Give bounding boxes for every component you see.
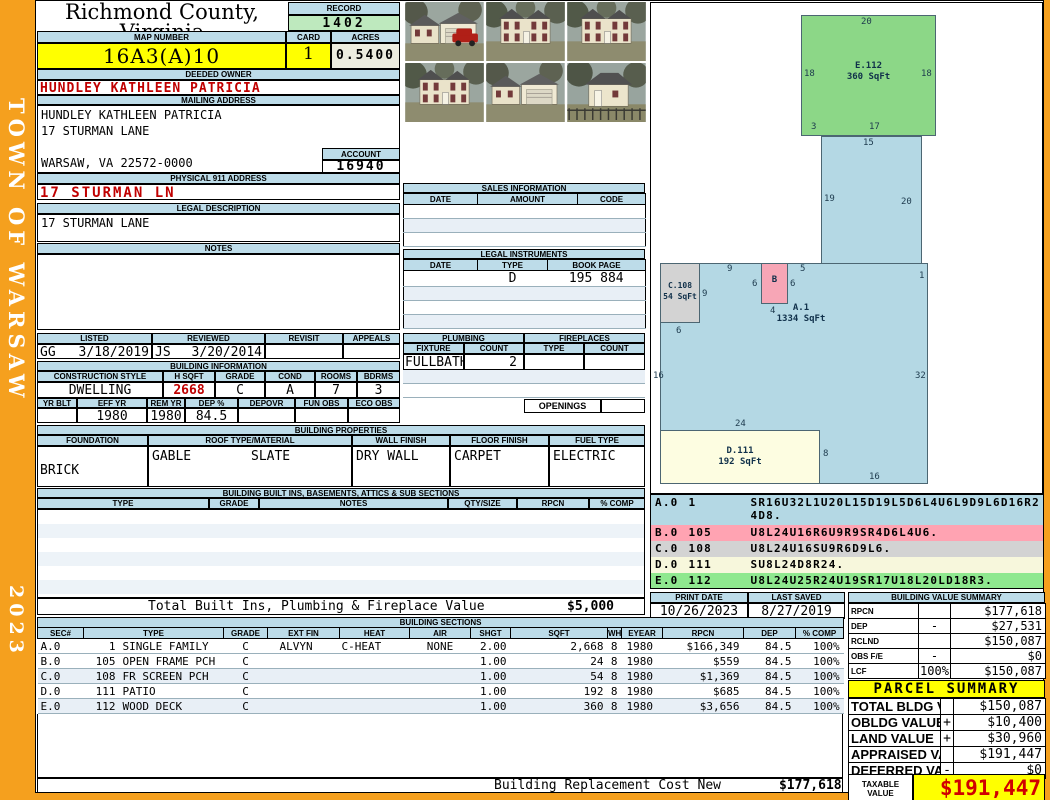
table-row: TOTAL BLDG VALUE$150,087 [849,699,1046,715]
listed-label: LISTED [37,333,152,344]
fireplace-type-label: TYPE [524,343,584,354]
cell-label: RCLND [849,634,919,649]
table-row: OBLDG VALUE+$10,400 [849,715,1046,731]
replacement-cost-value: $177,618 [779,778,842,793]
cell-sec: E.0 [38,699,84,714]
grade-value: C [215,382,265,398]
cell-sec: A.0 [38,639,84,654]
table-row: B.0105OPEN FRAME PCHC1.002481980$55984.5… [38,654,844,669]
built-ins-title: BUILDING BUILT INS, BASEMENTS, ATTICS & … [37,488,645,498]
area-name: A.1 [741,303,861,314]
property-photo-4 [405,63,484,122]
table-row: DEP-$27,531 [849,619,1046,634]
cell-amount [478,205,578,219]
cell-dep: 84.5 [744,639,796,654]
funobs-value [295,408,348,423]
record-label: RECORD [288,2,400,15]
cell-value: $150,087 [951,664,1046,679]
map-number-label: MAP NUMBER [37,31,286,43]
foundation-label: FOUNDATION [37,435,148,446]
cell-eyear: 1980 [622,639,663,654]
area-size: 192 SqFt [660,457,820,468]
cell-type: FR SCREEN PCH [116,669,224,684]
cell-date [404,233,478,247]
cell-amount [478,219,578,233]
wall-finish-label: WALL FINISH [352,435,450,446]
listed-value: GG3/18/2019 [37,344,152,359]
wall-finish-value: DRY WALL [352,446,450,487]
construction-style-label: CONSTRUCTION STYLE [37,371,163,382]
cell-type [478,287,548,301]
cell-air [410,669,471,684]
cell-code [578,205,646,219]
building-sections-title: BUILDING SECTIONS [38,618,844,628]
cell-sign [941,699,954,715]
sketch-label-a1: A.1 1334 SqFt [741,303,861,325]
cell-eyear: 1980 [622,684,663,699]
remyr-value: 1980 [147,408,185,423]
year-banner: 2023 [5,585,27,658]
bs-header: WHGT [608,628,622,639]
cell-label: TOTAL BLDG VALUE [849,699,941,715]
cell-comp: 100% [796,699,844,714]
dep-label: DEP % [185,398,238,408]
building-information-title: BUILDING INFORMATION [37,361,400,371]
cell-book [548,287,646,301]
cell-type [478,315,548,329]
cell-date [404,271,478,287]
acres-label: ACRES [331,31,400,43]
listed-date: 3/18/2019 [79,345,149,358]
dep-value: 84.5 [185,408,238,423]
bs-header: EXT FIN [268,628,340,639]
town-banner: TOWN OF WARSAW [4,98,29,403]
li-type-header: TYPE [478,260,548,271]
dimension-label: 16 [653,371,664,381]
cell-num: 1 [689,495,751,525]
cell-extfin [268,684,340,699]
dimension-label: 19 [824,194,835,204]
dimension-label: 6 [676,326,681,336]
revisit-value [265,344,343,359]
dimension-label: 24 [735,419,746,429]
empty-row [403,384,645,398]
legal-description-value: 17 STURMAN LANE [37,214,400,242]
dimension-label: 20 [901,197,912,207]
cell-extfin [268,699,340,714]
property-photo-5 [486,63,565,122]
mailing-line: 17 STURMAN LANE [41,124,399,140]
bi-rpcn-label: RPCN [517,498,589,509]
depovr-label: DEPOVR [238,398,295,408]
cell-sign [941,747,954,763]
cell-comp: 100% [796,654,844,669]
cell-comp: 100% [796,639,844,654]
area-size: 360 SqFt [801,72,936,83]
bi-comp-label: % COMP [589,498,645,509]
built-ins-total-label: Total Built Ins, Plumbing & Fireplace Va… [148,599,485,614]
bs-header: EYEAR [622,628,663,639]
ecoobs-label: ECO OBS [348,398,400,408]
dimension-label: 20 [861,17,872,27]
cell-code: SU8L24D8R24. [751,557,1044,573]
table-row: B.0105U8L24U16R6U9R9SR4D6L4U6. [651,525,1044,541]
sketch-label-e112: E.112 360 SqFt [801,61,936,83]
dimension-label: 9 [702,289,707,299]
bs-header: AIR [410,628,471,639]
mailing-address-label: MAILING ADDRESS [37,95,400,105]
card-label: CARD [286,31,331,43]
building-sections-table: BUILDING SECTIONS SEC# TYPE GRADE EXT FI… [37,617,844,714]
property-photo-2 [486,2,565,61]
cell-sqft: 2,668 [511,639,608,654]
sketch-label-b: B [761,275,788,286]
roof-value: GABLE SLATE [148,446,352,487]
county-title-block: Richmond County, Virginia Commissioner o… [37,2,287,31]
cell-dep: 84.5 [744,654,796,669]
legal-instruments-title: LEGAL INSTRUMENTS [403,249,645,259]
physical-address-value: 17 STURMAN LN [37,184,400,200]
cell-air: NONE [410,639,471,654]
cell-num: 1 [84,639,116,654]
cell-comp: 100% [796,684,844,699]
value-summary-table: RPCN$177,618DEP-$27,531RCLND$150,087OBS … [848,603,1046,679]
cell-sec: B.0 [38,654,84,669]
table-row: APPRAISED VALUE$191,447 [849,747,1046,763]
map-number-value: 16A3(A)10 [37,43,286,69]
table-row: D.0111PATIOC1.0019281980$68584.5100% [38,684,844,699]
area-name: E.112 [801,61,936,72]
bi-grade-label: GRADE [209,498,259,509]
cell-value: $10,400 [954,715,1046,731]
grade-label: GRADE [215,371,265,382]
deeded-owner-label: DEEDED OWNER [37,69,400,80]
cell-heat [340,654,410,669]
bs-header: GRADE [224,628,268,639]
construction-style-value: DWELLING [37,382,163,398]
dimension-label: 32 [915,371,926,381]
bs-header: SQFT [511,628,608,639]
table-row: E.0112WOOD DECKC1.0036081980$3,65684.510… [38,699,844,714]
cell-value: $177,618 [951,604,1046,619]
sales-date-header: DATE [404,194,478,205]
cell-book: 195 884 [548,271,646,287]
dimension-label: 9 [727,264,732,274]
cell-date [404,301,478,315]
cell-air [410,684,471,699]
table-row: C.0108FR SCREEN PCHC1.005481980$1,36984.… [38,669,844,684]
table-row [404,315,646,329]
cell-sqft: 24 [511,654,608,669]
cell-eyear: 1980 [622,669,663,684]
taxable-value-amount: $191,447 [913,774,1045,800]
cell-whgt: 8 [608,684,622,699]
fuel-type-value: ELECTRIC [549,446,645,487]
acres-value: 0.5400 [331,43,400,69]
foundation-value: BRICK [37,446,148,487]
cell-sqft: 360 [511,699,608,714]
sketch-codes-table: A.01SR16U32L1U20L15D19L5D6L4U6L9D9L6D16R… [650,494,1044,589]
plumbing-fixture-value: FULLBATH [403,354,464,370]
cell-code: SR16U32L1U20L15D19L5D6L4U6L9D9L6D16R24D8… [751,495,1044,525]
cell-type: OPEN FRAME PCH [116,654,224,669]
cell-whgt: 8 [608,639,622,654]
cell-num: 105 [84,654,116,669]
cell-rpcn: $166,349 [663,639,744,654]
cell-rpcn: $685 [663,684,744,699]
cell-sec: C.0 [38,669,84,684]
cell-date [404,219,478,233]
roof-type-value: GABLE [152,449,191,464]
fireplace-type-value [524,354,584,370]
table-row: D195 884 [404,271,646,287]
reviewed-value: JS3/20/2014 [152,344,265,359]
legal-description-label: LEGAL DESCRIPTION [37,203,400,214]
dimension-label: 15 [863,138,874,148]
replacement-cost-row: Building Replacement Cost New $177,618 [37,778,843,793]
last-saved-label: LAST SAVED [748,592,845,603]
sales-table: DATE AMOUNT CODE [403,193,646,247]
reviewed-date: 3/20/2014 [192,345,262,358]
cell-code: U8L24U25R24U19SR17U18L20LD18R3. [751,573,1044,589]
cell-label: OBLDG VALUE [849,715,941,731]
cell-heat [340,699,410,714]
area-name: D.111 [660,446,820,457]
revisit-label: REVISIT [265,333,343,344]
floor-finish-label: FLOOR FINISH [450,435,549,446]
table-row: OBS F/E-$0 [849,649,1046,664]
hsqft-label: H SQFT [163,371,215,382]
cell-num: 108 [84,669,116,684]
li-date-header: DATE [404,260,478,271]
remyr-label: REM YR [147,398,185,408]
cell-rpcn: $3,656 [663,699,744,714]
cell-shgt: 1.00 [471,699,511,714]
cell-sqft: 54 [511,669,608,684]
parcel-summary-table: TOTAL BLDG VALUE$150,087OBLDG VALUE+$10,… [848,698,1046,779]
cell-grade: C [224,684,268,699]
cell-whgt: 8 [608,699,622,714]
bi-type-label: TYPE [37,498,209,509]
fireplace-count-label: COUNT [584,343,645,354]
floor-finish-value: CARPET [450,446,549,487]
cell-value: $191,447 [954,747,1046,763]
hsqft-value: 2668 [163,382,215,398]
sketch-label-d111: D.111 192 SqFt [660,446,820,468]
table-row: LAND VALUE+$30,960 [849,731,1046,747]
cell-air [410,654,471,669]
cell-sec: A.0 [651,495,689,525]
plumbing-title: PLUMBING [403,333,524,343]
legal-instruments-table: DATE TYPE BOOK PAGE D195 884 [403,259,646,329]
bi-notes-label: NOTES [259,498,448,509]
table-row: E.0112U8L24U25R24U19SR17U18L20LD18R3. [651,573,1044,589]
cell-book [548,315,646,329]
table-row: C.0108U8L24U16SU9R6D9L6. [651,541,1044,557]
cell-value: $150,087 [951,634,1046,649]
property-photo-6 [567,63,646,122]
dimension-label: 16 [869,472,880,482]
cell-label: LAND VALUE [849,731,941,747]
table-row: A.01SINGLE FAMILYCALVYNC-HEATNONE2.002,6… [38,639,844,654]
cell-type: PATIO [116,684,224,699]
cell-num: 112 [84,699,116,714]
cell-date [404,205,478,219]
roof-label: ROOF TYPE/MATERIAL [148,435,352,446]
cell-label: APPRAISED VALUE [849,747,941,763]
property-photo-3 [567,2,646,61]
dimension-label: 6 [790,279,795,289]
reviewed-by: JS [155,345,171,358]
notes-box [37,254,400,330]
dimension-label: 5 [800,264,805,274]
cell-label: RPCN [849,604,919,619]
cell-rpcn: $1,369 [663,669,744,684]
appeals-value [343,344,400,359]
property-photo-1 [405,2,484,61]
cell-sign: + [941,731,954,747]
cell-shgt: 2.00 [471,639,511,654]
reviewed-label: REVIEWED [152,333,265,344]
ecoobs-value [348,408,400,423]
cell-amount [478,233,578,247]
dimension-label: 18 [804,69,815,79]
property-record-card: TOWN OF WARSAW 2023 Richmond County, Vir… [0,0,1050,800]
built-ins-total-value: $5,000 [567,599,614,614]
cell-heat [340,684,410,699]
li-book-header: BOOK PAGE [548,260,646,271]
value-summary-title: BUILDING VALUE SUMMARY [848,592,1045,603]
cell-code [578,219,646,233]
table-row: A.01SR16U32L1U20L15D19L5D6L4U6L9D9L6D16R… [651,495,1044,525]
taxable-value-label: TAXABLE VALUE [848,774,913,800]
cell-sqft: 192 [511,684,608,699]
sketch-label-c108: C.108 54 SqFt [660,280,700,302]
plumbing-count-value: 2 [464,354,524,370]
cell-dep: 84.5 [744,669,796,684]
bs-header: RPCN [663,628,744,639]
area-name: C.108 [660,280,700,291]
table-row: RPCN$177,618 [849,604,1046,619]
openings-label: OPENINGS [524,399,601,413]
cell-sec: C.0 [651,541,689,557]
cell-num: 111 [84,684,116,699]
physical-address-label: PHYSICAL 911 ADDRESS [37,173,400,184]
bs-header: HEAT [340,628,410,639]
dimension-label: 6 [752,279,757,289]
area-size: 1334 SqFt [741,314,861,325]
table-row [404,301,646,315]
table-row: RCLND$150,087 [849,634,1046,649]
sales-amount-header: AMOUNT [478,194,578,205]
cell-grade: C [224,699,268,714]
bi-qty-label: QTY/SIZE [448,498,517,509]
cell-air [410,699,471,714]
area-size: 54 SqFt [660,291,700,302]
cell-dep: 84.5 [744,684,796,699]
mailing-line: HUNDLEY KATHLEEN PATRICIA [41,108,399,124]
cell-num: 111 [689,557,751,573]
print-date-label: PRINT DATE [650,592,748,603]
table-row [404,219,646,233]
table-row: D.0111SU8L24D8R24. [651,557,1044,573]
cell-value: $150,087 [954,699,1046,715]
cell-heat: C-HEAT [340,639,410,654]
cell-sec: E.0 [651,573,689,589]
cell-book [548,301,646,315]
bdrms-label: BDRMS [357,371,400,382]
cell-sec: D.0 [38,684,84,699]
effyr-label: EFF YR [77,398,147,408]
photo-strip [405,2,646,122]
record-value: 1402 [288,15,400,31]
dimension-label: 4 [770,306,775,316]
cell-grade: C [224,669,268,684]
table-row [404,205,646,219]
bs-header: DEP [744,628,796,639]
sales-code-header: CODE [578,194,646,205]
cell-sign: + [941,715,954,731]
yrblt-value [37,408,77,423]
cond-value: A [265,382,315,398]
rooms-label: ROOMS [315,371,357,382]
cell-sign [919,604,951,619]
bs-header: SHGT [471,628,511,639]
empty-row [403,370,645,384]
cell-sign [919,634,951,649]
cell-shgt: 1.00 [471,654,511,669]
bdrms-value: 3 [357,382,400,398]
dimension-label: 3 [811,122,816,132]
cell-shgt: 1.00 [471,669,511,684]
cell-code [578,233,646,247]
cell-eyear: 1980 [622,699,663,714]
depovr-value [238,408,295,423]
appeals-label: APPEALS [343,333,400,344]
cell-label: LCF [849,664,919,679]
cell-type: D [478,271,548,287]
yrblt-label: YR BLT [37,398,77,408]
cell-num: 108 [689,541,751,557]
plumbing-count-label: COUNT [464,343,524,354]
card-value: 1 [286,43,331,69]
cell-sec: D.0 [651,557,689,573]
cell-sign: - [919,649,951,664]
cell-shgt: 1.00 [471,684,511,699]
dimension-label: 18 [921,69,932,79]
cell-grade: C [224,654,268,669]
cell-sign: 100% [919,664,951,679]
cell-type: SINGLE FAMILY [116,639,224,654]
cell-value: $0 [951,649,1046,664]
cell-num: 112 [689,573,751,589]
cell-label: OBS F/E [849,649,919,664]
building-properties-title: BUILDING PROPERTIES [37,425,645,435]
replacement-cost-label: Building Replacement Cost New [494,778,721,793]
cell-heat [340,669,410,684]
area-name: B [761,275,788,286]
fuel-type-label: FUEL TYPE [549,435,645,446]
cell-value: $30,960 [954,731,1046,747]
cell-sec: B.0 [651,525,689,541]
cell-dep: 84.5 [744,699,796,714]
account-value: 16940 [322,160,400,173]
sketch-canvas: E.112 360 SqFt A.1 1334 SqFt B C.108 54 … [650,2,1043,494]
built-ins-total-row: Total Built Ins, Plumbing & Fireplace Va… [37,598,645,615]
deeded-owner-value: HUNDLEY KATHLEEN PATRICIA [37,80,400,95]
bs-header: TYPE [84,628,224,639]
funobs-label: FUN OBS [295,398,348,408]
